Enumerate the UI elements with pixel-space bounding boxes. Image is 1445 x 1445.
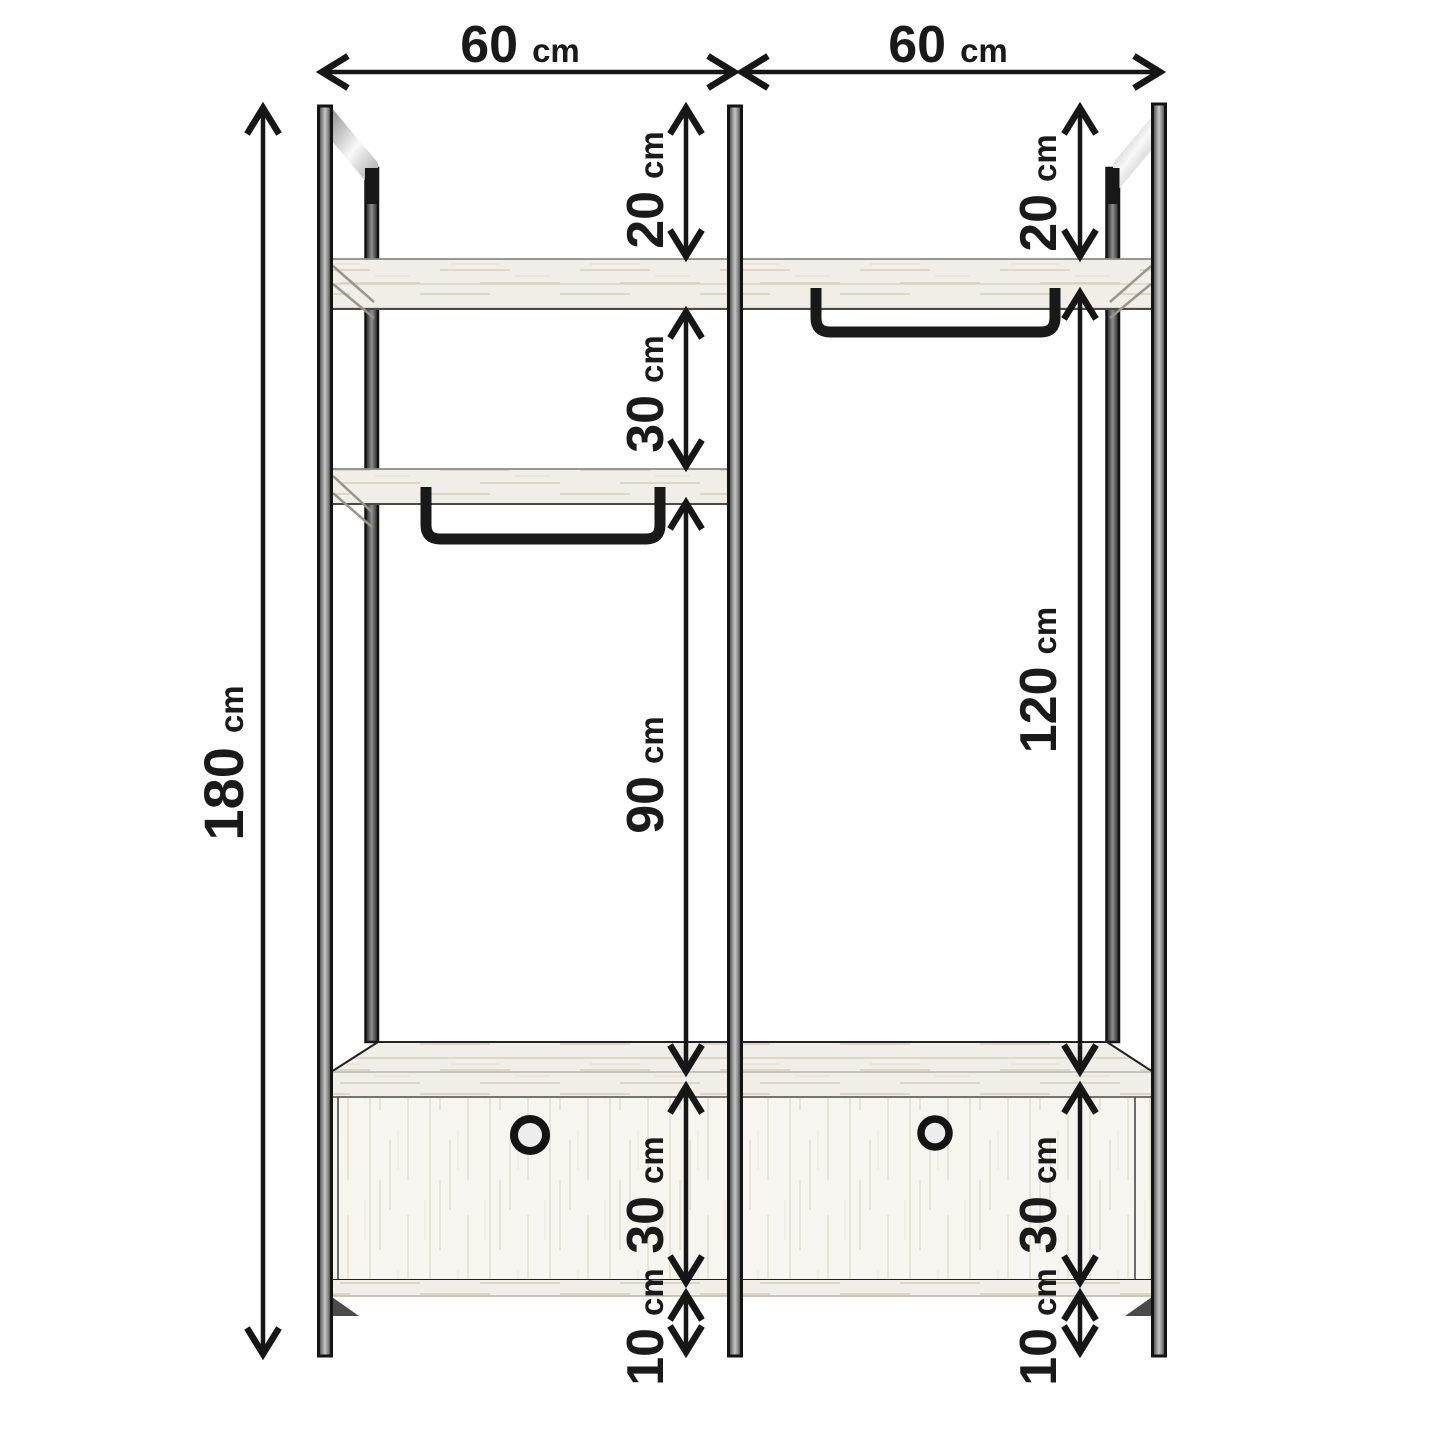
left-rear-post-cap [365, 168, 379, 204]
right-rear-post-cap [1106, 168, 1120, 204]
dim-right-120-label: 120cm [1010, 607, 1068, 753]
dim-left-shelf-spacing: 30cm [617, 312, 702, 466]
dim-right-top-clearance: 20cm [1010, 108, 1096, 256]
dim-bay-left-width-label: 60cm [460, 16, 580, 74]
dim-left-20-label: 20cm [617, 131, 675, 249]
diagram-canvas: 180cm 60cm 60cm 20cm 30cm 90cm [0, 0, 1445, 1445]
dim-right-hanging-height: 120cm [1010, 293, 1096, 1071]
right-front-post [1153, 104, 1166, 1356]
left-drawer-knob[interactable] [514, 1119, 546, 1151]
dim-left-top-clearance: 20cm [617, 108, 702, 256]
dim-bay-right-width-label: 60cm [888, 16, 1008, 74]
dim-right-20-label: 20cm [1010, 134, 1068, 252]
wardrobe-dimension-diagram: 180cm 60cm 60cm 20cm 30cm 90cm [0, 0, 1445, 1445]
right-foot-brace [1125, 1297, 1152, 1316]
dim-total-height-label: 180cm [192, 685, 255, 840]
dim-bay-right-width: 60cm [742, 16, 1160, 88]
dim-left-90-label: 90cm [617, 716, 675, 834]
dim-left-hanging-height: 90cm [617, 503, 702, 1071]
left-foot-brace [332, 1297, 359, 1316]
right-drawer-knob[interactable] [921, 1119, 949, 1147]
middle-shelf-left [331, 469, 728, 527]
dim-total-height: 180cm [192, 108, 279, 1354]
dim-left-30-label: 30cm [617, 335, 675, 453]
dim-bay-left-width: 60cm [322, 16, 734, 88]
middle-shelf-board [331, 469, 728, 505]
left-front-post [319, 106, 332, 1356]
center-post [729, 106, 742, 1356]
